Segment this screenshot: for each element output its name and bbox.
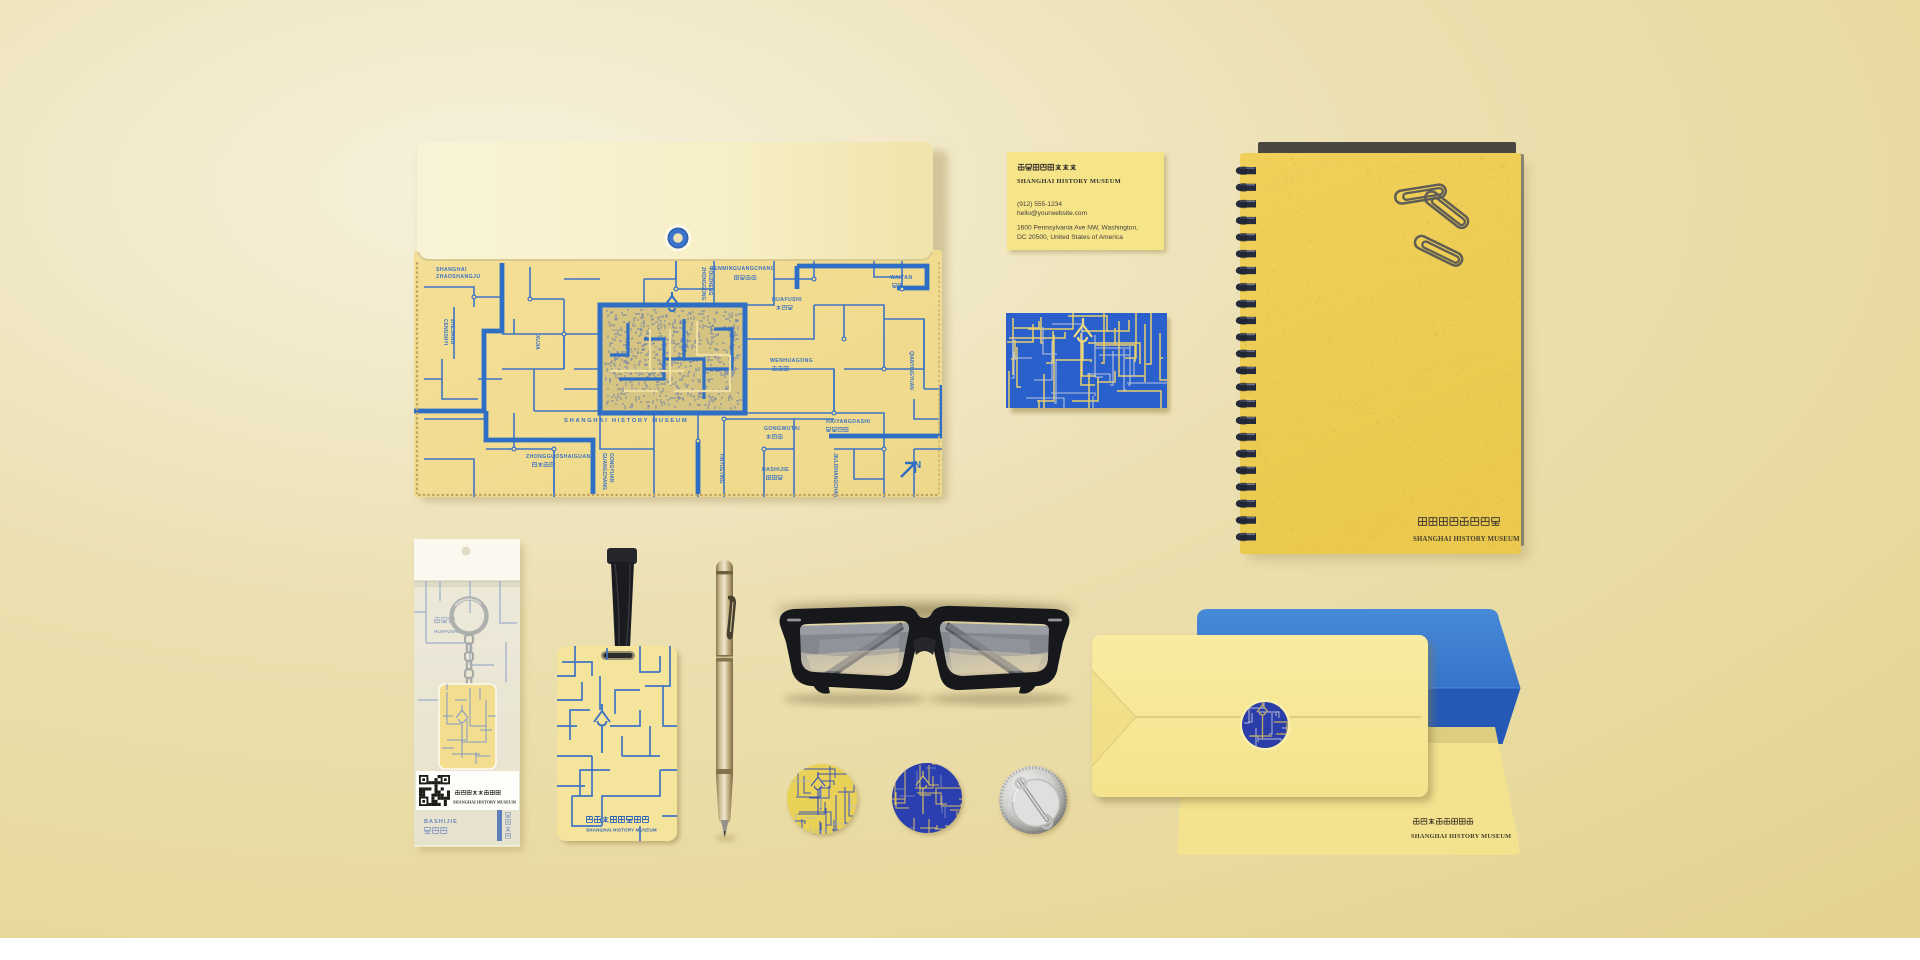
svg-text:BASHIJIE: BASHIJIE <box>424 819 458 825</box>
svg-text:SHANGHAI HISTORY MUSEUM: SHANGHAI HISTORY MUSEUM <box>453 800 516 805</box>
svg-text:1600 Pennsylvania Ave NW, Wash: 1600 Pennsylvania Ave NW, Washington, <box>1017 225 1138 232</box>
svg-text:QIANYINGYUAN: QIANYINGYUAN <box>908 351 914 390</box>
svg-text:HUAFUSHI: HUAFUSHI <box>772 297 802 303</box>
svg-text:(912) 555-1234: (912) 555-1234 <box>1017 201 1062 208</box>
svg-text:ZHAOSHANGJU: ZHAOSHANGJU <box>436 274 480 280</box>
svg-text:SHANGHAI HISTORY MUSEUM: SHANGHAI HISTORY MUSEUM <box>1411 833 1511 840</box>
svg-text:N: N <box>914 460 921 471</box>
svg-text:RENMINGUANGCHANG: RENMINGUANGCHANG <box>710 266 775 272</box>
svg-text:WENHUAGONG: WENHUAGONG <box>770 358 813 364</box>
svg-text:DC 20500, United States of Ame: DC 20500, United States of America <box>1017 234 1123 241</box>
svg-text:YINYUETING: YINYUETING <box>718 453 724 484</box>
svg-text:SHANGHAI HISTORY MUSEUM: SHANGHAI HISTORY MUSEUM <box>564 418 688 424</box>
svg-text:ZHEJIANG: ZHEJIANG <box>449 319 455 344</box>
svg-text:ZHONGGONG: ZHONGGONG <box>700 267 706 300</box>
svg-text:SHANGHAI HISTORY MUSEUM: SHANGHAI HISTORY MUSEUM <box>1017 178 1121 185</box>
svg-text:XUJIA: XUJIA <box>534 335 540 350</box>
svg-text:HAIYANGDASHI: HAIYANGDASHI <box>826 419 871 425</box>
svg-text:SHANGHAI HISTORY MUSEUM: SHANGHAI HISTORY MUSEUM <box>586 828 657 833</box>
svg-text:WAITAN: WAITAN <box>890 275 912 281</box>
svg-text:SHANGHAI: SHANGHAI <box>436 267 467 273</box>
svg-text:GONGWUTAI: GONGWUTAI <box>764 426 800 432</box>
svg-text:hello@yourwebsite.com: hello@yourwebsite.com <box>1017 210 1088 217</box>
svg-text:DASHIJIE: DASHIJIE <box>762 467 789 473</box>
svg-text:YOUZHENG: YOUZHENG <box>707 267 713 295</box>
svg-text:CENGSHYI: CENGSHYI <box>442 319 448 346</box>
svg-text:ZHONGGUOSHAIGUAN: ZHONGGUOSHAIGUAN <box>526 454 591 460</box>
svg-text:GONGYUAN: GONGYUAN <box>608 453 614 483</box>
svg-text:SHANGHAI HISTORY MUSEUM: SHANGHAI HISTORY MUSEUM <box>1413 536 1520 543</box>
svg-text:GUANGCHANG: GUANGCHANG <box>601 453 607 490</box>
